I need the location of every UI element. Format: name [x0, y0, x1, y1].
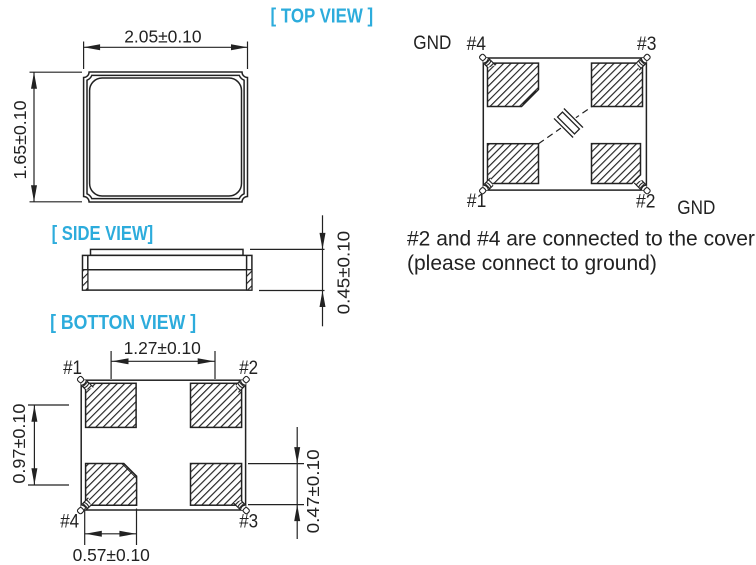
svg-text:1.65±0.10: 1.65±0.10	[10, 101, 30, 180]
svg-text:#4: #4	[60, 512, 79, 533]
svg-text:#3: #3	[239, 512, 258, 533]
svg-text:0.47±0.10: 0.47±0.10	[303, 449, 323, 533]
svg-text:#2: #2	[636, 191, 655, 212]
svg-text:#3: #3	[637, 34, 656, 55]
svg-text:GND: GND	[413, 32, 451, 54]
svg-text:#1: #1	[63, 358, 82, 379]
svg-text:(please connect to ground): (please connect to ground)	[407, 252, 657, 275]
svg-text:0.97±0.10: 0.97±0.10	[9, 404, 29, 484]
svg-text:GND: GND	[677, 197, 715, 219]
svg-text:2.05±0.10: 2.05±0.10	[124, 26, 201, 46]
svg-text:0.45±0.10: 0.45±0.10	[334, 231, 354, 315]
svg-text:1.27±0.10: 1.27±0.10	[124, 338, 201, 358]
svg-text:#2: #2	[239, 358, 258, 379]
svg-text:#2 and #4 are connected to the: #2 and #4 are connected to the cover	[407, 228, 755, 251]
svg-text:[ BOTTON VIEW ]: [ BOTTON VIEW ]	[50, 312, 196, 334]
svg-text:0.57±0.10: 0.57±0.10	[73, 545, 150, 565]
svg-text:#1: #1	[467, 191, 486, 212]
svg-text:[ TOP VIEW ]: [ TOP VIEW ]	[271, 6, 374, 28]
svg-text:#4: #4	[467, 34, 487, 55]
svg-text:[ SIDE VIEW]: [ SIDE VIEW]	[52, 223, 154, 245]
